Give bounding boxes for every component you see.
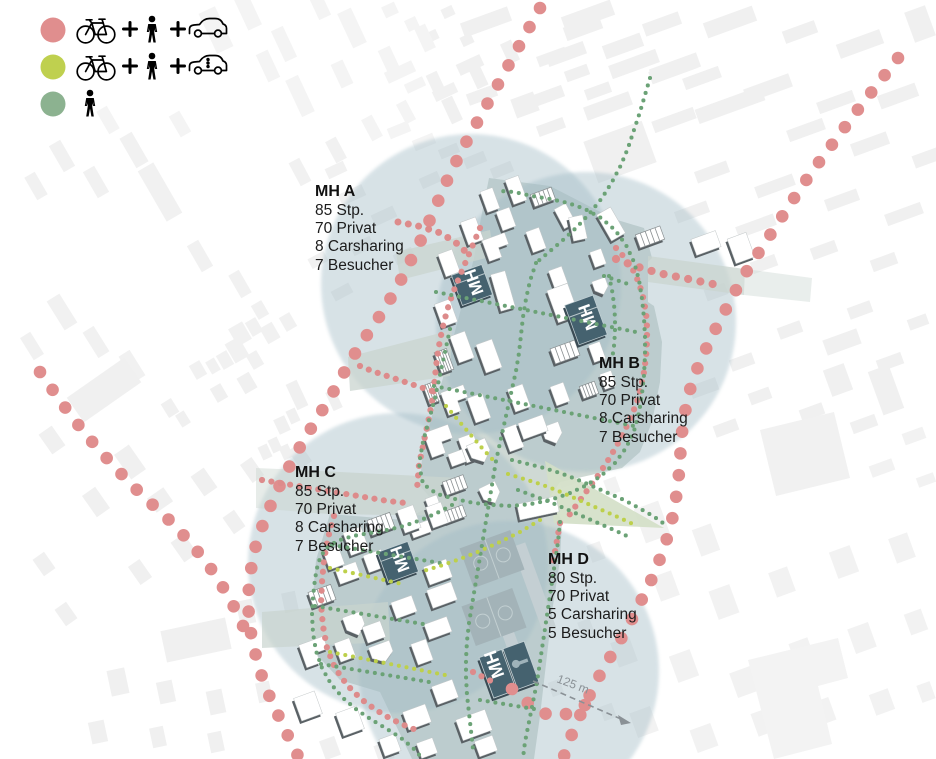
svg-text:70 Privat: 70 Privat (295, 501, 357, 518)
svg-text:7 Besucher: 7 Besucher (315, 257, 393, 274)
svg-text:7 Besucher: 7 Besucher (295, 538, 373, 555)
svg-text:85 Stp.: 85 Stp. (295, 483, 344, 500)
svg-text:85 Stp.: 85 Stp. (599, 374, 648, 391)
svg-text:70 Privat: 70 Privat (599, 392, 661, 409)
svg-text:5 Carsharing: 5 Carsharing (548, 606, 637, 623)
svg-text:85 Stp.: 85 Stp. (315, 202, 364, 219)
svg-text:70 Privat: 70 Privat (315, 220, 377, 237)
svg-text:MH D: MH D (548, 551, 589, 568)
svg-text:8 Carsharing: 8 Carsharing (295, 519, 384, 536)
svg-text:MH A: MH A (315, 183, 356, 200)
svg-text:MH C: MH C (295, 464, 336, 481)
svg-text:5 Besucher: 5 Besucher (548, 625, 626, 642)
svg-text:8 Carsharing: 8 Carsharing (315, 238, 404, 255)
svg-text:80 Stp.: 80 Stp. (548, 570, 597, 587)
svg-text:8 Carsharing: 8 Carsharing (599, 410, 688, 427)
svg-text:7 Besucher: 7 Besucher (599, 429, 677, 446)
svg-text:70 Privat: 70 Privat (548, 588, 610, 605)
svg-text:MH B: MH B (599, 355, 640, 372)
